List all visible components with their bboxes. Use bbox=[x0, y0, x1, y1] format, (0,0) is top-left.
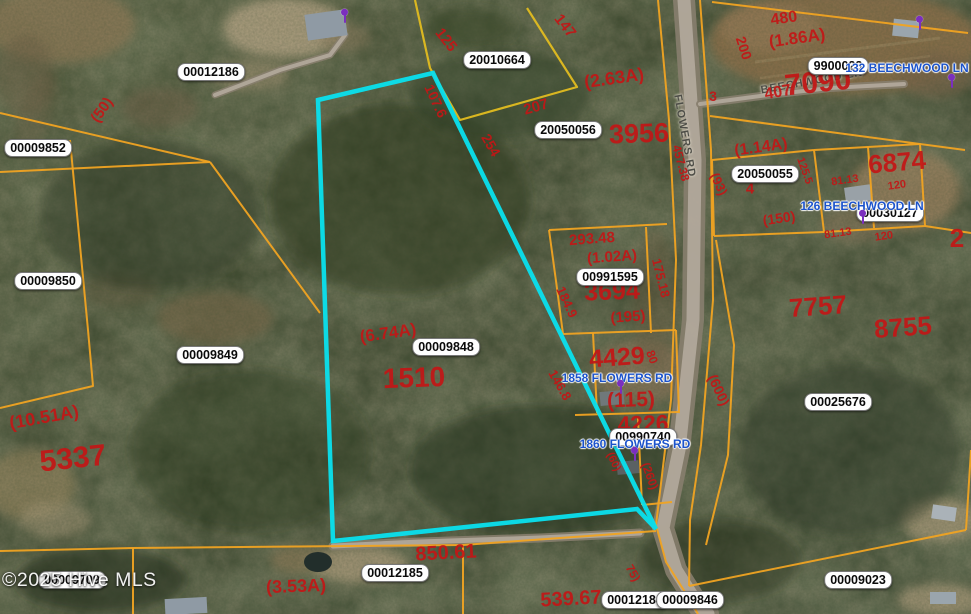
lot-dimension-label: (1.86A) bbox=[768, 26, 827, 51]
parcel-id-label: 00009849 bbox=[176, 346, 244, 364]
house-marker-icon bbox=[341, 9, 349, 24]
map-labels: FLOWERS RDBEECHWOOD LN(50)125147107.6254… bbox=[0, 0, 971, 614]
lot-dimension-label: 3956 bbox=[609, 119, 670, 148]
lot-dimension-label: (600) bbox=[706, 372, 733, 408]
lot-dimension-label: (195) bbox=[610, 308, 646, 325]
lot-dimension-label: 81.13 bbox=[831, 174, 860, 189]
lot-dimension-label: 6874 bbox=[867, 147, 927, 178]
lot-dimension-label: 5337 bbox=[38, 441, 108, 478]
lot-dimension-label: (93) bbox=[708, 171, 730, 197]
house-marker-icon bbox=[631, 447, 639, 462]
lot-dimension-label: 207 bbox=[522, 96, 550, 117]
parcel-id-label: 00009023 bbox=[824, 571, 892, 589]
lot-dimension-label: (115) bbox=[607, 389, 656, 412]
lot-dimension-label: 107.6 bbox=[422, 82, 449, 120]
lot-dimension-label: (2.63A) bbox=[583, 65, 645, 91]
lot-dimension-label: (260) bbox=[640, 461, 661, 491]
lot-dimension-label: 175.18 bbox=[650, 257, 672, 299]
house-marker-icon bbox=[617, 380, 625, 395]
lot-dimension-label: 2 bbox=[950, 225, 964, 251]
parcel-id-label: 00991595 bbox=[576, 268, 644, 286]
lot-dimension-label: 147 bbox=[551, 12, 578, 41]
lot-dimension-label: 539.67 bbox=[540, 587, 602, 610]
parcel-id-label: 20050055 bbox=[731, 165, 799, 183]
lot-dimension-label: 850.61 bbox=[415, 541, 477, 564]
lot-dimension-label: 4 bbox=[746, 182, 754, 197]
lot-dimension-label: (60) bbox=[604, 451, 622, 473]
lot-dimension-label: 4429 bbox=[588, 344, 645, 373]
lot-dimension-label: 293.48 bbox=[569, 230, 616, 248]
parcel-id-label: 20050056 bbox=[534, 121, 602, 139]
lot-dimension-label: 81.13 bbox=[824, 227, 853, 242]
lot-dimension-label: (3.53A) bbox=[266, 576, 327, 596]
parcel-id-label: 00009848 bbox=[412, 338, 480, 356]
parcel-id-label: 00012186 bbox=[177, 63, 245, 81]
lot-dimension-label: 254 bbox=[479, 131, 503, 158]
parcel-id-label: 00009852 bbox=[4, 139, 72, 157]
lot-dimension-label: 480 bbox=[770, 9, 799, 29]
lot-dimension-label: 125 bbox=[432, 26, 459, 55]
lot-dimension-label: 1510 bbox=[382, 363, 445, 393]
watermark: ©2025 Hive MLS bbox=[2, 569, 157, 592]
parcel-id-label: 20010664 bbox=[463, 51, 531, 69]
parcel-id-label: 00025676 bbox=[804, 393, 872, 411]
lot-dimension-label: 7757 bbox=[788, 291, 848, 321]
lot-dimension-label: 120 bbox=[874, 230, 894, 243]
house-marker-icon bbox=[916, 16, 924, 31]
lot-dimension-label: (150) bbox=[762, 209, 796, 227]
parcel-id-label: 00009850 bbox=[14, 272, 82, 290]
lot-dimension-label: 8755 bbox=[873, 312, 933, 342]
parcel-id-label: 00012185 bbox=[361, 564, 429, 582]
lot-dimension-label: (6.74A) bbox=[359, 321, 418, 346]
house-marker-icon bbox=[948, 74, 956, 89]
lot-dimension-label: (1.02A) bbox=[587, 248, 638, 266]
parcel-map-view[interactable]: FLOWERS RDBEECHWOOD LN(50)125147107.6254… bbox=[0, 0, 971, 614]
lot-dimension-label: 184.9 bbox=[554, 285, 580, 320]
lot-dimension-label: 75) bbox=[623, 562, 642, 583]
parcel-id-label: 00009846 bbox=[656, 591, 724, 609]
lot-dimension-label: 200 bbox=[734, 35, 755, 62]
lot-dimension-label: (50) bbox=[88, 95, 116, 125]
house-marker-icon bbox=[859, 210, 867, 225]
lot-dimension-label: 120 bbox=[887, 179, 907, 192]
address-label: 132 BEECHWOOD LN bbox=[845, 62, 968, 74]
lot-dimension-label: (1.14A) bbox=[733, 136, 788, 159]
lot-dimension-label: (10.51A) bbox=[8, 402, 80, 432]
lot-dimension-label: 80 bbox=[644, 349, 660, 366]
lot-dimension-label: 3 bbox=[709, 89, 717, 103]
